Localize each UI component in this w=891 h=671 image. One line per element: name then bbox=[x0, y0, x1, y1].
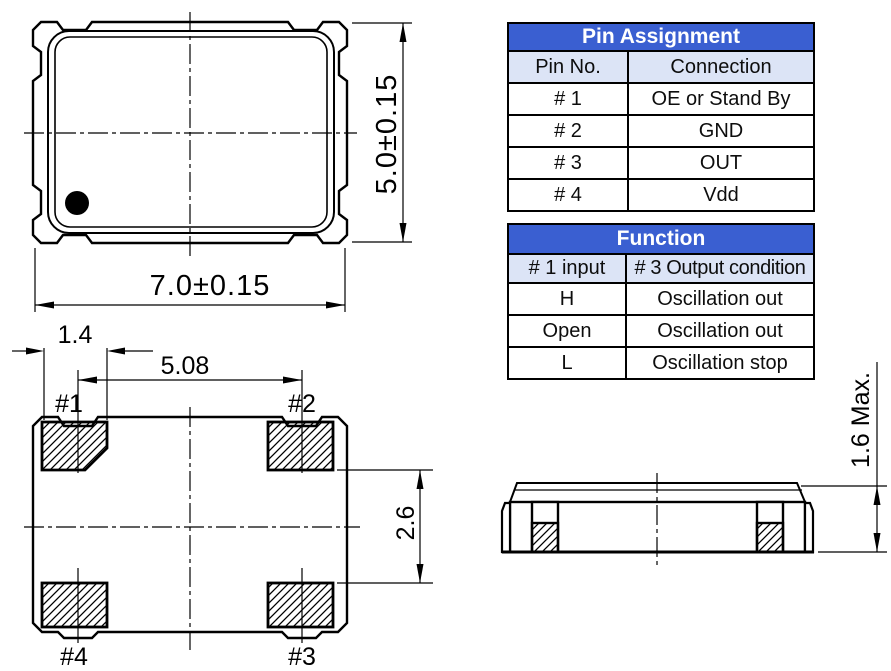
bottom-view-drawing bbox=[0, 320, 460, 671]
table-row: # 1 OE or Stand By bbox=[508, 83, 814, 115]
output-cell: Oscillation out bbox=[626, 315, 814, 347]
table-row: # 4 Vdd bbox=[508, 179, 814, 211]
output-cell: Oscillation stop bbox=[626, 347, 814, 379]
side-view-drawing bbox=[450, 340, 891, 671]
table-row: # 2 GND bbox=[508, 115, 814, 147]
pin-number-cell: # 2 bbox=[508, 115, 628, 147]
datasheet-page: 7.0±0.15 5.0±0.15 1.4 5.08 2.6 #1 #2 #4 … bbox=[0, 0, 891, 671]
function-title: Function bbox=[508, 224, 814, 254]
table-row: L Oscillation stop bbox=[508, 347, 814, 379]
pad-1-label: #1 bbox=[34, 390, 104, 418]
pad-pitch-dimension: 5.08 bbox=[140, 352, 230, 380]
input-cell: L bbox=[508, 347, 626, 379]
table-row: Open Oscillation out bbox=[508, 315, 814, 347]
pad-2 bbox=[268, 422, 333, 470]
pad-2-label: #2 bbox=[267, 390, 337, 418]
pin-no-column-header: Pin No. bbox=[508, 51, 628, 83]
connection-cell: GND bbox=[628, 115, 814, 147]
left-pad-hatch bbox=[532, 523, 558, 552]
input-cell: H bbox=[508, 283, 626, 315]
pad-3 bbox=[268, 583, 333, 627]
side-view-height-dimension: 1.6 Max. bbox=[847, 360, 875, 480]
pin-assignment-title: Pin Assignment bbox=[508, 23, 814, 51]
input-cell: Open bbox=[508, 315, 626, 347]
pad-row-gap-dimension: 2.6 bbox=[392, 483, 420, 563]
pin1-index-dot bbox=[65, 191, 89, 215]
pad-4 bbox=[42, 583, 107, 627]
connection-cell: Vdd bbox=[628, 179, 814, 211]
pad-4-label: #4 bbox=[39, 643, 109, 671]
pin-number-cell: # 1 bbox=[508, 83, 628, 115]
pin-number-cell: # 3 bbox=[508, 147, 628, 179]
table-row: H Oscillation out bbox=[508, 283, 814, 315]
output-column-header: # 3 Output condition bbox=[626, 254, 814, 283]
top-view-width-dimension: 7.0±0.15 bbox=[110, 270, 310, 302]
right-pad-hatch bbox=[757, 523, 783, 552]
function-table: Function # 1 input # 3 Output condition … bbox=[507, 223, 815, 380]
pad-3-label: #3 bbox=[267, 643, 337, 671]
connection-column-header: Connection bbox=[628, 51, 814, 83]
output-cell: Oscillation out bbox=[626, 283, 814, 315]
left-castellation bbox=[502, 503, 510, 552]
input-column-header: # 1 input bbox=[508, 254, 626, 283]
pin-assignment-table: Pin Assignment Pin No. Connection # 1 OE… bbox=[507, 22, 815, 212]
pin-number-cell: # 4 bbox=[508, 179, 628, 211]
edge-to-pad-dimension: 1.4 bbox=[40, 321, 110, 349]
top-view-height-dimension: 5.0±0.15 bbox=[371, 59, 403, 209]
table-row: # 3 OUT bbox=[508, 147, 814, 179]
connection-cell: OUT bbox=[628, 147, 814, 179]
connection-cell: OE or Stand By bbox=[628, 83, 814, 115]
right-castellation bbox=[805, 503, 813, 552]
